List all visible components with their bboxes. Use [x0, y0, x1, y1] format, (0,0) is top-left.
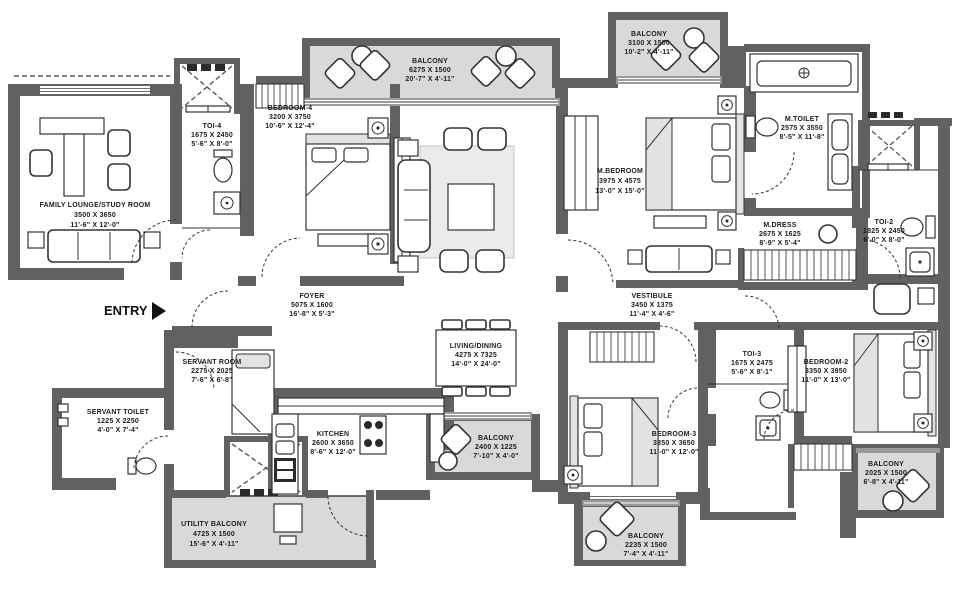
kitchen-fixtures: [272, 398, 444, 494]
bedroom4-mm: 3200 X 3750: [269, 114, 311, 121]
m-dress-ft: 8'-9" X 5'-4": [759, 240, 800, 247]
master-bed-icon: [564, 96, 744, 230]
balcony-center-mm: 2400 X 1225: [475, 444, 517, 451]
utility-balcony-mm: 4725 X 1500: [193, 531, 235, 538]
foyer-mm: 5075 X 1600: [291, 302, 333, 309]
bedroom2-mm: 3350 X 3950: [805, 368, 847, 375]
utility-balcony-floor: [170, 496, 368, 562]
balcony-bottom-name: BALCONY: [628, 533, 664, 540]
m-toilet-name: M.TOILET: [785, 116, 820, 123]
lift-1-icon: [182, 64, 232, 112]
balcony-right-ft: 6'-8" X 4'-11": [863, 479, 908, 486]
servant-toilet-ft: 4'-0" X 7'-4": [97, 427, 138, 434]
servant-room-ft: 7'-6" X 6'-8": [191, 377, 232, 384]
toi2-name: TOI-2: [875, 219, 894, 226]
living-dining-ft: 14'-0" X 24'-0": [451, 361, 501, 368]
balcony-center-name: BALCONY: [478, 435, 514, 442]
kitchen-ft: 8'-6" X 12'-0": [310, 449, 355, 456]
servant-toilet-mm: 1225 X 2250: [97, 418, 139, 425]
toi3-ft: 5'-6" X 8'-1": [731, 369, 772, 376]
balcony-top-right-name: BALCONY: [631, 31, 667, 38]
m-bedroom-mm: 3975 X 4575: [599, 178, 641, 185]
wardrobe-mdress-icon: [744, 250, 856, 280]
living-dining-name: LIVING/DINING: [450, 343, 503, 350]
label-toi3: TOI-3 1675 X 2475 5'-6" X 8'-1": [731, 351, 773, 376]
label-bedroom3: BEDROOM-3 3350 X 3650 11'-0" X 12'-0": [649, 431, 698, 456]
balcony-top-mm: 6275 X 1500: [409, 67, 451, 74]
label-balcony-bottom: BALCONY 2235 X 1500 7'-4" X 4'-11": [623, 533, 668, 558]
entry-marker: ENTRY: [104, 302, 166, 320]
toi3-fixtures: [708, 384, 794, 440]
toi4-ft: 5'-6" X 8'-0": [191, 141, 232, 148]
wardrobe-bedroom3-icon: [590, 332, 654, 362]
living-furniture: [394, 128, 514, 272]
bedroom4-ft: 10'-6" X 12'-4": [265, 123, 315, 130]
balcony-center-ft: 7'-10" X 4'-0": [473, 453, 518, 460]
bedroom3-ft: 11'-0" X 12'-0": [649, 449, 698, 456]
vestibule-sofa-icon: [628, 246, 730, 272]
label-family-lounge: FAMILY LOUNGE/STUDY ROOM 3500 X 3650 11'…: [40, 202, 151, 229]
label-servant-toilet: SERVANT TOILET 1225 X 2250 4'-0" X 7'-4": [87, 409, 150, 434]
bedroom3-mm: 3350 X 3650: [653, 440, 695, 447]
label-balcony-top: BALCONY 6275 X 1500 20'-7" X 4'-11": [405, 58, 454, 83]
m-bedroom-ft: 13'-0" X 15'-0": [595, 188, 645, 195]
balcony-right-mm: 2025 X 1500: [865, 470, 907, 477]
label-living-dining: LIVING/DINING 4275 X 7325 14'-0" X 24'-0…: [450, 343, 503, 368]
m-toilet-mm: 2575 X 3550: [781, 125, 823, 132]
utility-balcony-ft: 15'-6" X 4'-11": [189, 541, 238, 548]
label-m-toilet: M.TOILET 2575 X 3550 8'-5" X 11'-8": [779, 116, 824, 141]
vestibule-ft: 11'-4" X 4'-6": [629, 311, 674, 318]
dress-stool-icon: [819, 225, 837, 243]
servant-toilet-name: SERVANT TOILET: [87, 409, 150, 416]
balcony-top-right-ft: 10'-2" X 4'-11": [624, 49, 673, 56]
bedroom2-ft: 11'-0" X 13'-0": [801, 377, 850, 384]
family-lounge-mm: 3500 X 3650: [74, 212, 116, 219]
bed3-icon: [564, 396, 658, 488]
label-servant-room: SERVANT ROOM 2275 X 2025 7'-6" X 6'-8": [183, 359, 242, 384]
balcony-top-ft: 20'-7" X 4'-11": [405, 76, 454, 83]
utility-balcony-name: UTILITY BALCONY: [181, 521, 247, 528]
floor-plan-page: ENTRY FAMILY LOUNGE/STUDY ROOM 3500 X 36…: [0, 0, 964, 592]
balcony-bottom-ft: 7'-4" X 4'-11": [623, 551, 668, 558]
servant-room-name: SERVANT ROOM: [183, 359, 242, 366]
bedroom3-name: BEDROOM-3: [652, 431, 697, 438]
study-desk-icon: [30, 118, 130, 196]
m-bedroom-name: M.BEDROOM: [597, 168, 643, 175]
toi4-mm: 1675 X 2450: [191, 132, 233, 139]
bedroom4-name: BEDROOM-4: [268, 105, 313, 112]
balcony-bottom-mm: 2235 X 1500: [625, 542, 667, 549]
kitchen-mm: 2600 X 3650: [312, 440, 354, 447]
floor-plan-drawing: ENTRY FAMILY LOUNGE/STUDY ROOM 3500 X 36…: [0, 0, 964, 592]
label-m-bedroom: M.BEDROOM 3975 X 4575 13'-0" X 15'-0": [595, 168, 645, 195]
label-balcony-right: BALCONY 2025 X 1500 6'-8" X 4'-11": [863, 461, 908, 486]
toi3-mm: 1675 X 2475: [731, 360, 773, 367]
bed4-icon: [306, 118, 390, 254]
label-balcony-top-right: BALCONY 3100 X 1500 10'-2" X 4'-11": [624, 31, 673, 56]
passage-chair-icon: [874, 284, 934, 314]
label-balcony-center: BALCONY 2400 X 1225 7'-10" X 4'-0": [473, 435, 518, 460]
living-dining-mm: 4275 X 7325: [455, 352, 497, 359]
toi4-fixtures: [182, 150, 240, 228]
label-bedroom2: BEDROOM-2 3350 X 3950 11'-0" X 13'-0": [801, 359, 850, 384]
servant-room-mm: 2275 X 2025: [191, 368, 233, 375]
vestibule-name: VESTIBULE: [631, 293, 672, 300]
label-toi4: TOI-4 1675 X 2450 5'-6" X 8'-0": [191, 123, 233, 148]
vestibule-mm: 3450 X 1375: [631, 302, 673, 309]
label-vestibule: VESTIBULE 3450 X 1375 11'-4" X 4'-6": [629, 293, 674, 318]
label-m-dress: M.DRESS 2675 X 1625 8'-9" X 5'-4": [759, 222, 801, 247]
bedroom2-name: BEDROOM-2: [804, 359, 849, 366]
foyer-name: FOYER: [299, 293, 324, 300]
m-dress-name: M.DRESS: [763, 222, 796, 229]
m-toilet-ft: 8'-5" X 11'-8": [779, 134, 824, 141]
label-bedroom4: BEDROOM-4 3200 X 3750 10'-6" X 12'-4": [265, 105, 315, 130]
label-kitchen: KITCHEN 2600 X 3650 8'-6" X 12'-0": [310, 431, 355, 456]
kitchen-name: KITCHEN: [317, 431, 350, 438]
master-vanity-icon: [750, 54, 858, 92]
lounge-sofa-icon: [28, 230, 160, 262]
balcony-right-name: BALCONY: [868, 461, 904, 468]
balcony-top-name: BALCONY: [412, 58, 448, 65]
balcony-top-right-mm: 3100 X 1500: [628, 40, 670, 47]
toi3-name: TOI-3: [743, 351, 762, 358]
m-dress-mm: 2675 X 1625: [759, 231, 801, 238]
toi2-ft: 6'-0" X 8'-0": [863, 237, 904, 244]
entry-label: ENTRY: [104, 303, 148, 318]
toi2-mm: 1825 X 2450: [863, 228, 905, 235]
entry-arrow-icon: [152, 302, 166, 320]
wardrobe-bedroom2-icon: [794, 444, 852, 470]
label-foyer: FOYER 5075 X 1600 16'-8" X 5'-3": [289, 293, 334, 318]
family-lounge-ft: 11'-6" X 12'-0": [70, 222, 119, 229]
label-toi2: TOI-2 1825 X 2450 6'-0" X 8'-0": [863, 219, 905, 244]
toi4-name: TOI-4: [203, 123, 222, 130]
foyer-ft: 16'-8" X 5'-3": [289, 311, 334, 318]
family-lounge-name: FAMILY LOUNGE/STUDY ROOM: [40, 202, 151, 209]
